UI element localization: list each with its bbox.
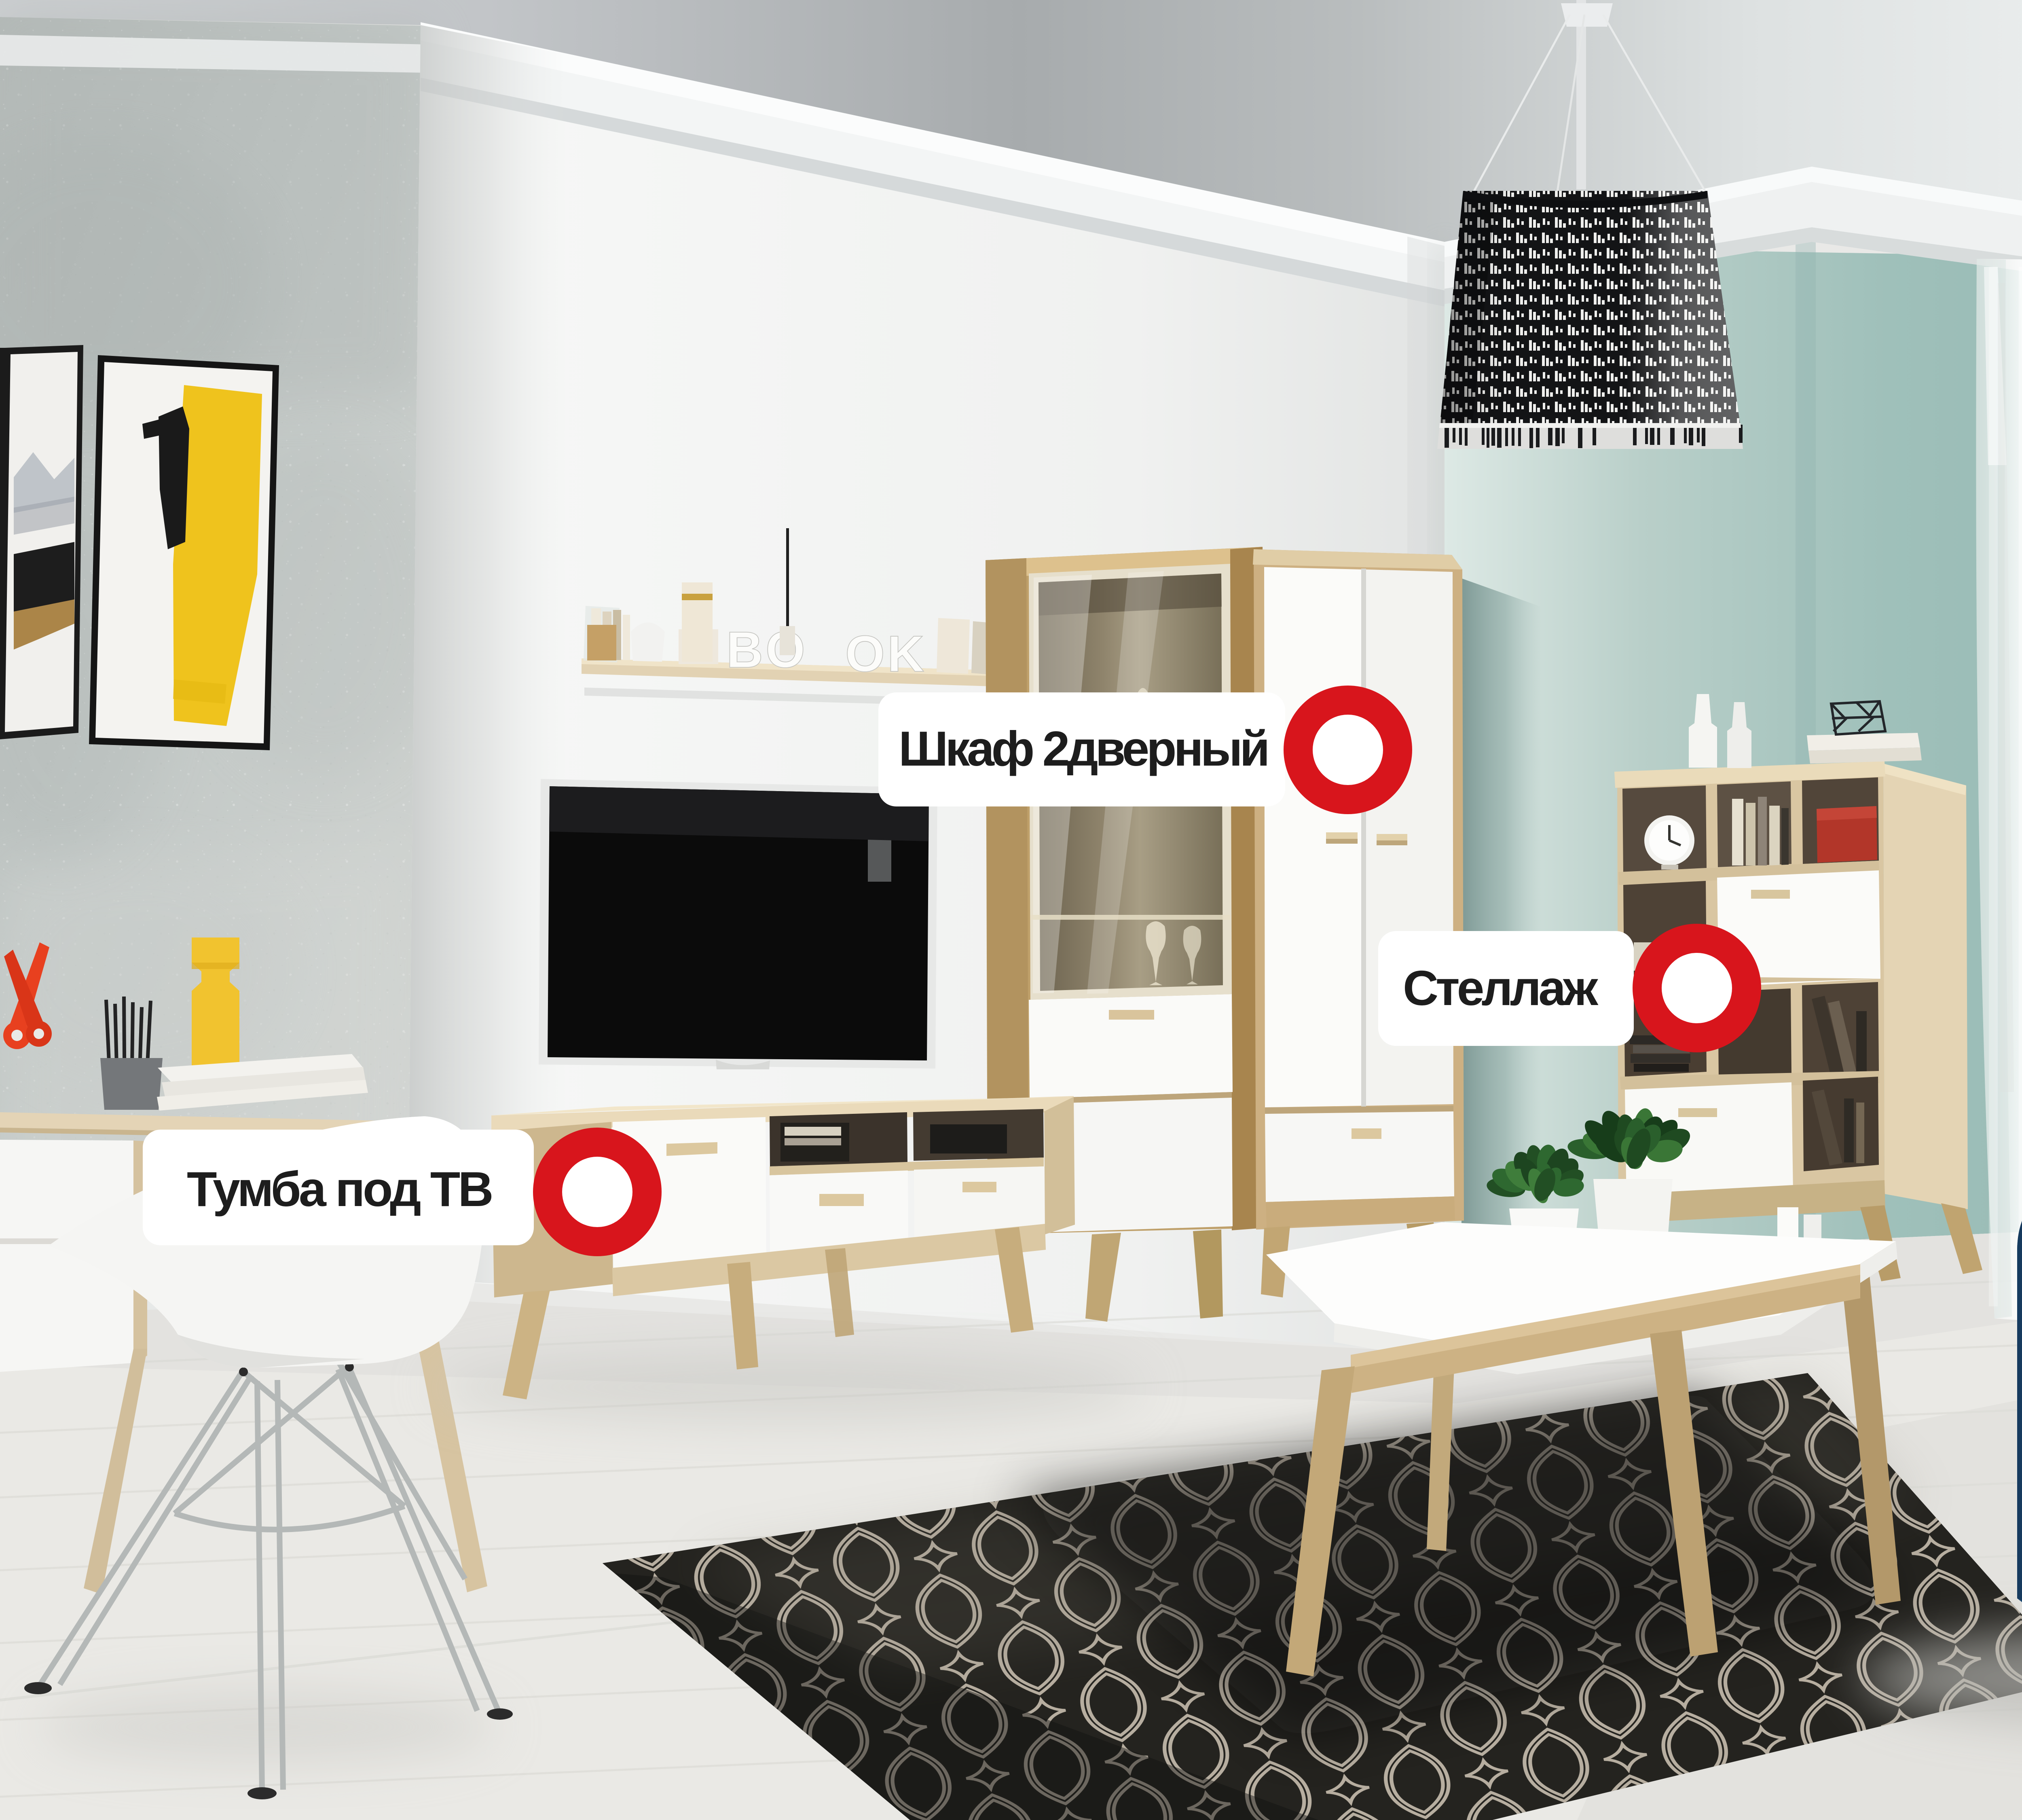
svg-text:OK: OK (845, 625, 926, 682)
svg-text:Шкаф 2дверный: Шкаф 2дверный (899, 721, 1267, 776)
svg-text:Тумба под ТВ: Тумба под ТВ (187, 1162, 492, 1217)
svg-text:BO: BO (726, 621, 808, 678)
svg-text:Стеллаж: Стеллаж (1403, 961, 1599, 1016)
